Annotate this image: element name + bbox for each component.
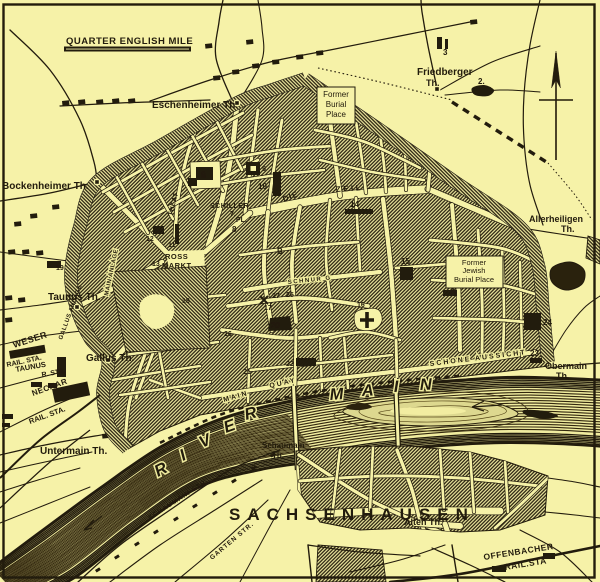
- svg-text:PL.: PL.: [236, 217, 247, 224]
- svg-text:18: 18: [182, 298, 190, 305]
- svg-text:N: N: [420, 376, 434, 394]
- svg-text:Untermain Th.: Untermain Th.: [40, 446, 107, 457]
- svg-text:26: 26: [224, 331, 232, 338]
- svg-text:Allerheiligen: Allerheiligen: [529, 214, 583, 224]
- svg-text:5: 5: [262, 166, 266, 173]
- svg-text:16: 16: [357, 302, 365, 309]
- svg-text:27: 27: [272, 293, 280, 300]
- svg-text:19: 19: [56, 265, 64, 272]
- svg-text:Th.: Th.: [272, 451, 284, 460]
- svg-text:22: 22: [286, 361, 294, 368]
- svg-text:Th.: Th.: [561, 224, 575, 234]
- svg-text:21: 21: [243, 369, 251, 376]
- svg-text:M: M: [329, 385, 345, 404]
- svg-text:Eschenheimer Th.: Eschenheimer Th.: [152, 100, 238, 111]
- svg-text:SACHSENHAUSEN: SACHSENHAUSEN: [229, 505, 475, 524]
- svg-text:24: 24: [543, 318, 552, 327]
- svg-text:14: 14: [350, 200, 359, 209]
- svg-text:25: 25: [286, 292, 294, 299]
- svg-text:Burial Place: Burial Place: [454, 275, 494, 284]
- svg-text:QUARTER ENGLISH MILE: QUARTER ENGLISH MILE: [66, 36, 193, 47]
- svg-text:A: A: [450, 287, 456, 296]
- svg-text:Schaumain: Schaumain: [262, 441, 305, 450]
- svg-text:MARKT: MARKT: [162, 261, 192, 270]
- svg-text:2.: 2.: [478, 77, 485, 86]
- svg-text:23: 23: [530, 349, 539, 358]
- svg-text:8: 8: [232, 225, 237, 234]
- svg-text:Burial: Burial: [326, 100, 347, 109]
- svg-text:15: 15: [401, 257, 410, 266]
- svg-text:3: 3: [443, 48, 448, 57]
- svg-text:Th.: Th.: [426, 78, 440, 88]
- svg-text:Gallus Th.: Gallus Th.: [86, 353, 135, 364]
- svg-text:Th.: Th.: [556, 371, 570, 381]
- svg-text:10: 10: [258, 182, 267, 191]
- svg-text:B: B: [277, 247, 283, 256]
- svg-text:6: 6: [201, 170, 206, 180]
- svg-text:7.: 7.: [230, 211, 236, 218]
- svg-text:17: 17: [264, 305, 272, 312]
- svg-text:SCHILLER: SCHILLER: [210, 203, 249, 210]
- svg-text:A: A: [360, 381, 374, 400]
- svg-text:ZEIL: ZEIL: [336, 183, 364, 194]
- svg-text:12: 12: [146, 236, 154, 243]
- svg-text:13.: 13.: [152, 261, 162, 268]
- svg-text:Place: Place: [326, 110, 347, 119]
- svg-text:Former: Former: [323, 90, 349, 99]
- svg-text:ROSS: ROSS: [165, 252, 188, 261]
- svg-text:20: 20: [271, 321, 280, 330]
- svg-text:Bockenheimer Th.: Bockenheimer Th.: [2, 181, 89, 192]
- svg-text:Obermain: Obermain: [545, 361, 587, 371]
- svg-text:Jewish: Jewish: [463, 266, 486, 275]
- svg-text:Friedberger: Friedberger: [417, 67, 473, 78]
- svg-text:11: 11: [168, 242, 176, 249]
